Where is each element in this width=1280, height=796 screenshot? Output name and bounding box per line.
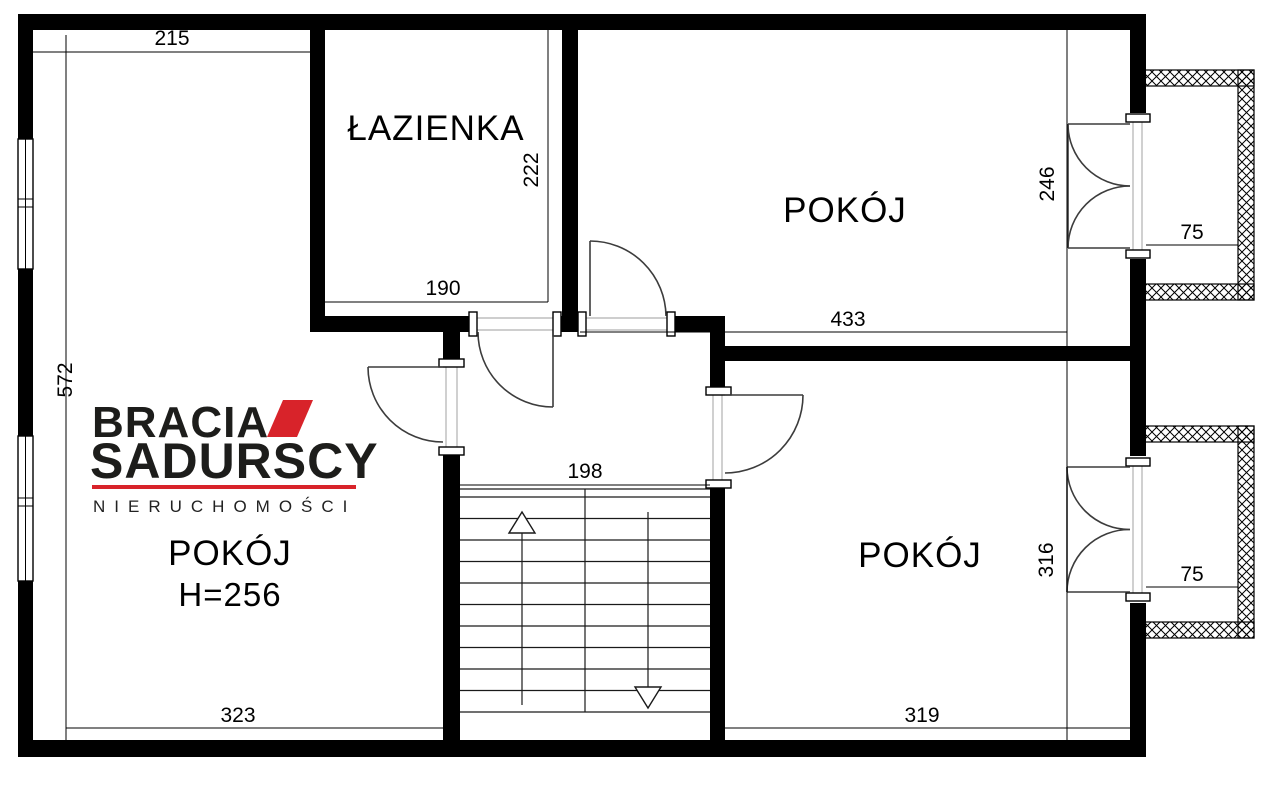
window-left-upper [18, 139, 33, 269]
label-room-bottom-right: POKÓJ [858, 536, 982, 575]
wall-bottom-room-north [710, 346, 1146, 361]
stairs-up-arrow [509, 512, 535, 705]
dim-top-balcony-width: 75 [1180, 221, 1203, 244]
dim-left-height: 572 [54, 362, 77, 397]
door-balcony-bottom [1067, 467, 1130, 592]
wall-bathroom-room-divider [562, 30, 578, 332]
stairs [460, 489, 710, 712]
thresholds [446, 318, 722, 480]
balcony-top-band-east [1238, 70, 1254, 300]
walls [18, 14, 1146, 757]
balcony-top [1138, 70, 1254, 300]
balcony-top-band-north [1138, 70, 1254, 86]
balcony-top-band-south [1138, 284, 1254, 300]
label-room-left: POKÓJ [168, 534, 292, 573]
balcony-bottom-door-opening [1129, 466, 1147, 593]
dim-top-right-width: 433 [830, 308, 865, 331]
wall-stairwell-west-lower [443, 447, 460, 757]
dimension-labels: 215 572 190 222 433 246 75 198 316 75 32… [54, 27, 1204, 727]
dim-top-left-width: 215 [154, 27, 189, 50]
window-left-lower [18, 436, 33, 581]
wall-exterior-left-upper [18, 14, 33, 139]
wall-bottom-room-west-lower [710, 480, 725, 757]
dimension-lines [33, 30, 1238, 740]
wall-exterior-bottom [18, 740, 1146, 757]
wall-exterior-left-lower [18, 581, 33, 757]
door-room-bottom-right [725, 395, 803, 473]
balcony-bottom [1138, 426, 1254, 638]
dim-bathroom-width: 190 [425, 277, 460, 300]
floor-plan: 215 572 190 222 433 246 75 198 316 75 32… [0, 0, 1280, 791]
balcony-bottom-band-east [1238, 426, 1254, 638]
wall-bottom-room-west-upper [710, 316, 725, 395]
door-balcony-top [1068, 124, 1130, 248]
brand-mark-icon [267, 400, 313, 437]
door-bathroom [478, 332, 553, 407]
dim-stairs-width: 198 [567, 460, 602, 483]
balcony-bottom-band-north [1138, 426, 1254, 442]
brand-line3: NIERUCHOMOŚCI [93, 497, 356, 516]
balcony-top-door-opening [1129, 122, 1147, 250]
dim-bathroom-height: 222 [520, 152, 543, 187]
dim-bottom-balcony-width: 75 [1180, 563, 1203, 586]
dim-bottom-right-width: 319 [904, 704, 939, 727]
label-room-left-height: H=256 [178, 576, 281, 613]
dim-bottom-right-height: 316 [1035, 542, 1058, 577]
balcony-bottom-band-south [1138, 622, 1254, 638]
wall-bathroom-left [310, 30, 325, 332]
stairs-down-arrow [635, 512, 661, 708]
label-room-top-right: POKÓJ [783, 191, 907, 230]
brand-rule [92, 485, 356, 489]
dim-bottom-left-width: 323 [220, 704, 255, 727]
door-room-top-right [590, 241, 666, 316]
door-room-left [368, 367, 443, 442]
wall-exterior-right-upper [1130, 14, 1146, 113]
brand-line2: SADURSCY [90, 433, 379, 489]
dim-top-right-height: 246 [1036, 166, 1059, 201]
label-bathroom: ŁAZIENKA [347, 109, 524, 148]
brand-logo: BRACIA SADURSCY NIERUCHOMOŚCI [90, 398, 379, 516]
wall-exterior-left-mid [18, 269, 33, 436]
